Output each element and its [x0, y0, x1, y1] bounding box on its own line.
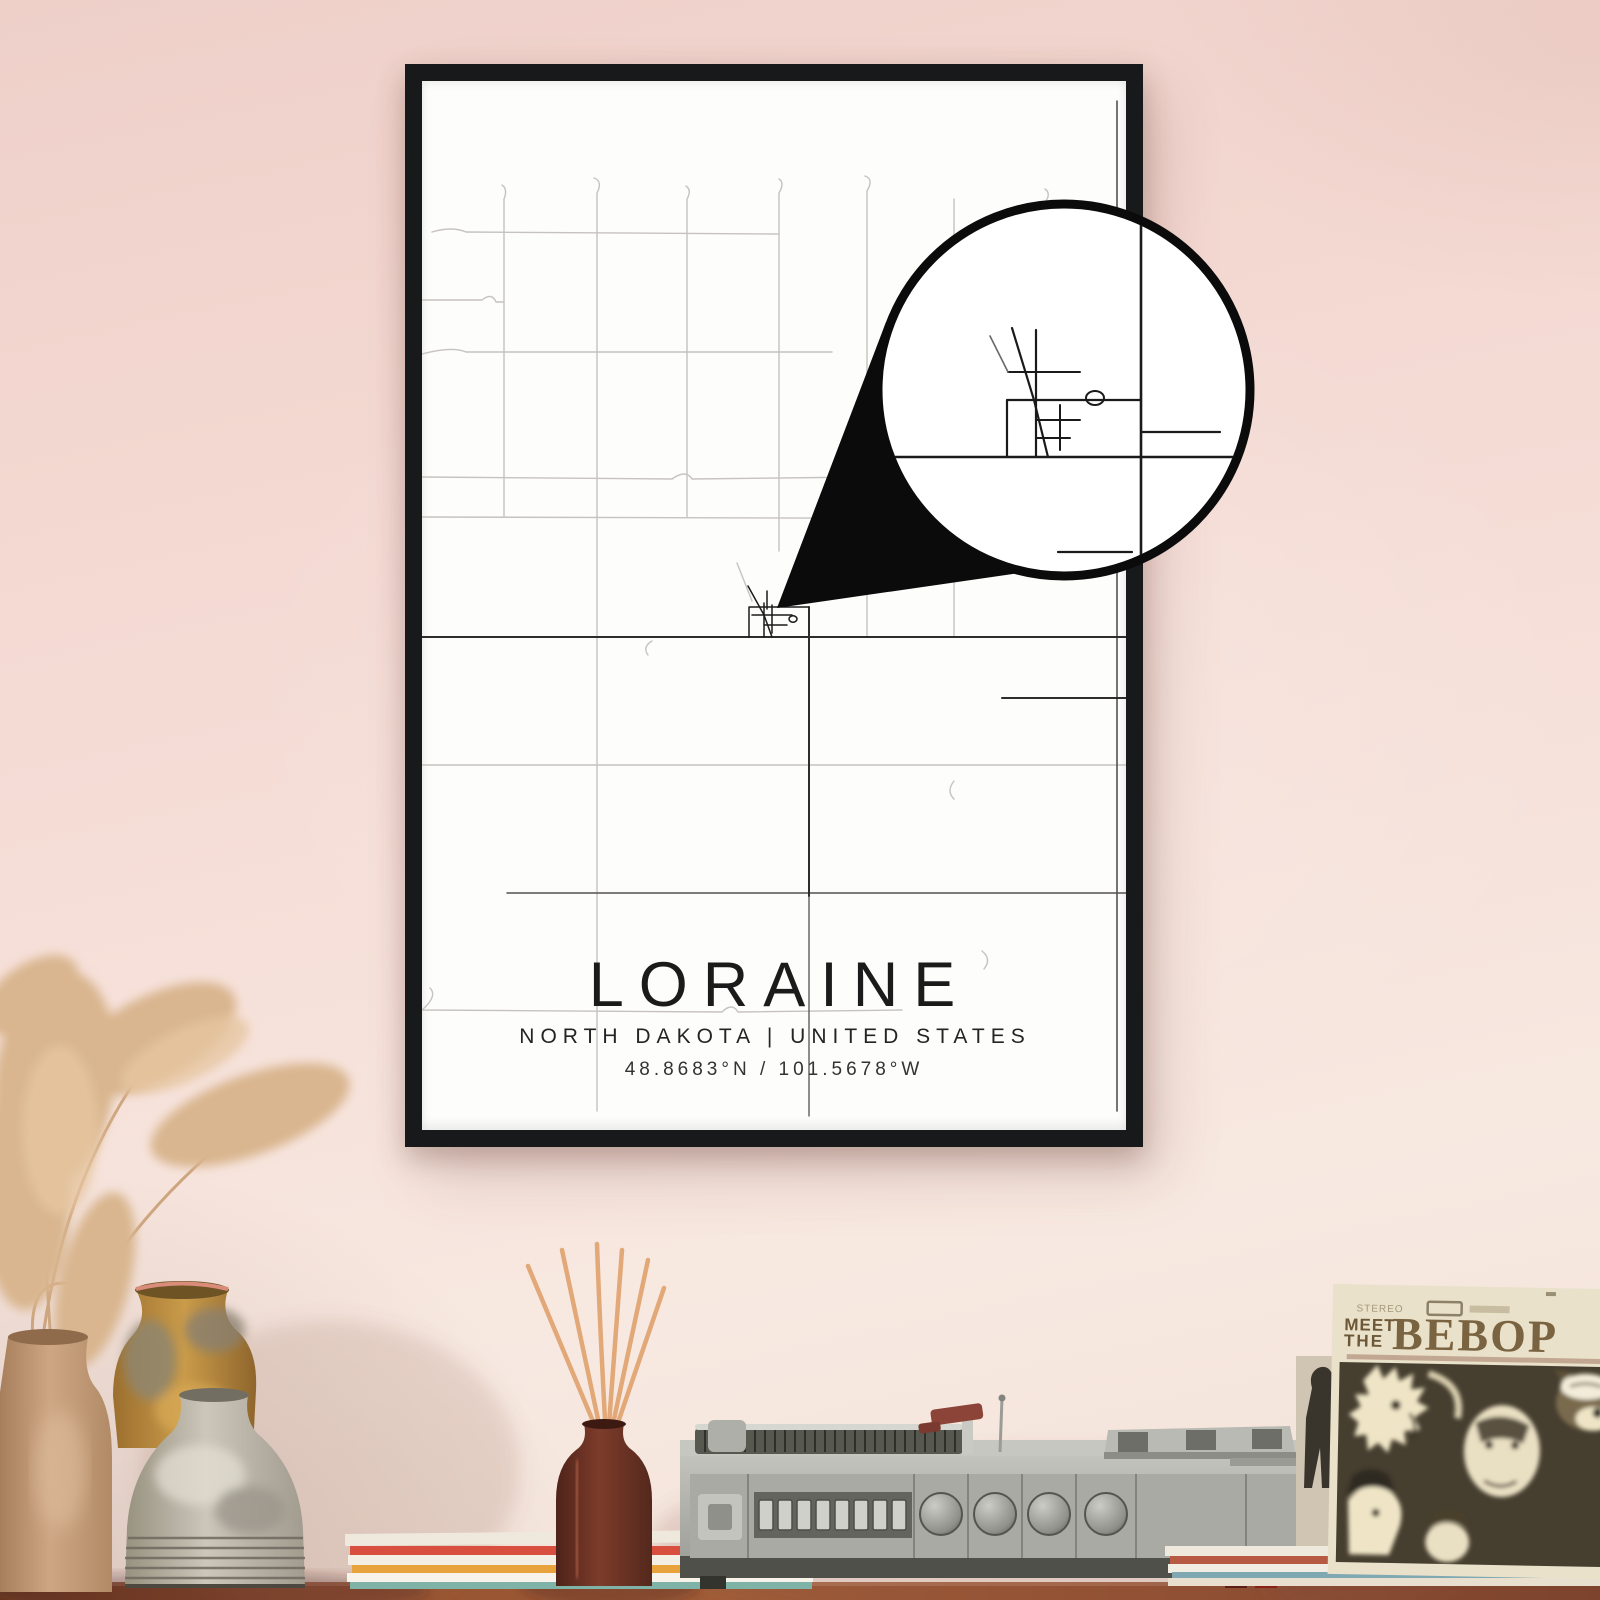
reed-diffuser-bottle [556, 1424, 652, 1586]
vase-tall-tan [0, 1329, 112, 1592]
album-bebop: STEREO MEET THE BEBOP [1328, 1284, 1600, 1580]
album-title-bebop: BEBOP [1392, 1308, 1559, 1362]
album-photo [1336, 1362, 1600, 1567]
preset-buttons [754, 1492, 912, 1538]
product-photo: { "poster": { "title": "LORAINE", "regio… [0, 0, 1600, 1600]
album-title-the: THE [1344, 1331, 1384, 1351]
reed-sticks [528, 1244, 664, 1440]
power-button [698, 1494, 742, 1540]
